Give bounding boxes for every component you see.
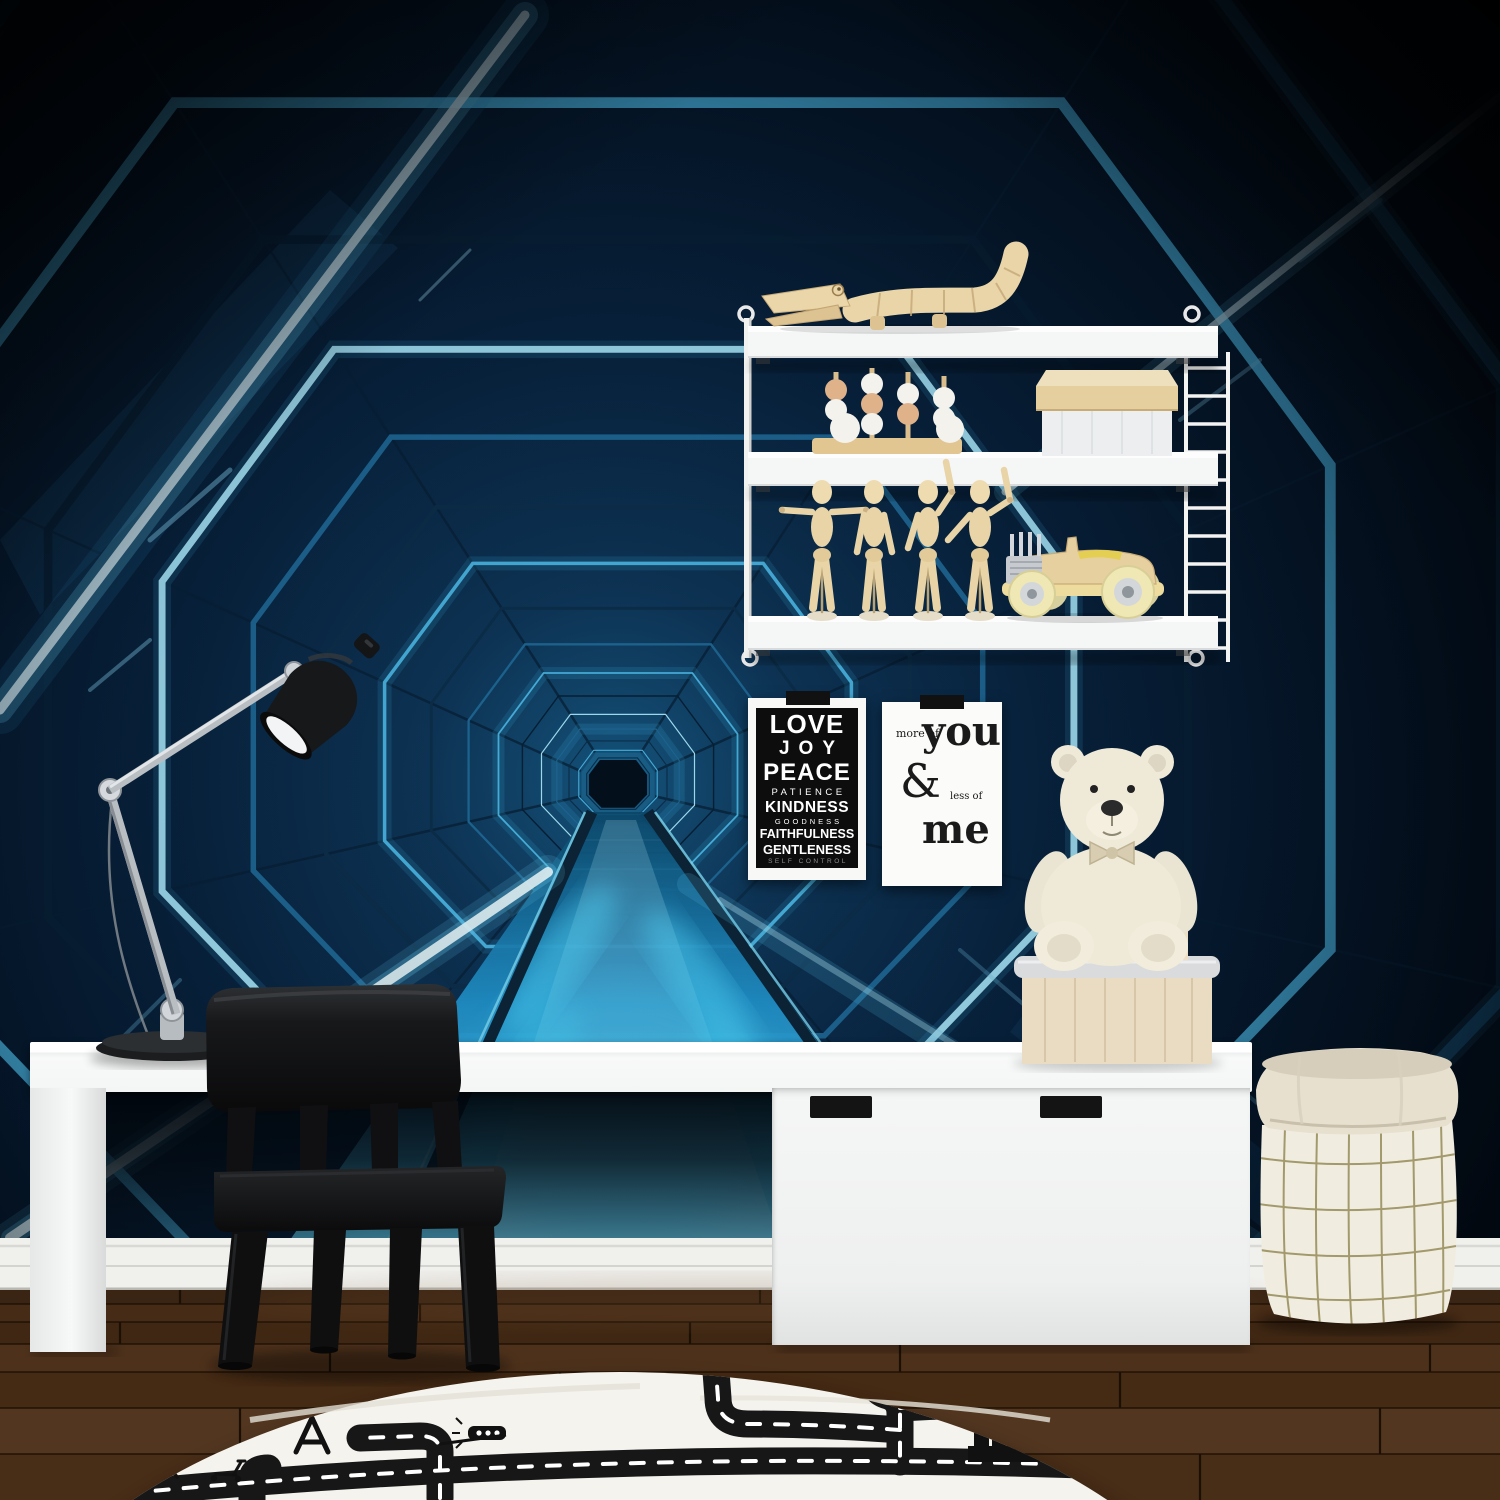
drawer-handle-left: [810, 1096, 872, 1118]
poster-black-panel: LOVE JOY PEACE PATIENCE KINDNESS GOODNES…: [756, 708, 858, 868]
poster-line-peace: PEACE: [763, 761, 851, 785]
teddy-and-boxes: [1000, 730, 1230, 1075]
laundry-basket: [1235, 1040, 1480, 1340]
poster-line-joy: JOY: [779, 739, 844, 758]
lamp-head: [250, 614, 401, 770]
storage-cabinet: [772, 1088, 1250, 1345]
room-scene: LOVE JOY PEACE PATIENCE KINDNESS GOODNES…: [0, 0, 1500, 1500]
shelf-post-left: [744, 318, 752, 658]
kids-chair: [180, 955, 520, 1385]
teddy-bear: [1016, 745, 1206, 971]
poster-tape-icon: [920, 695, 964, 709]
toy-abacus: [812, 368, 964, 454]
toy-car: [1002, 532, 1164, 623]
poster-more-of-you: more of you & less of me: [882, 702, 1002, 886]
toy-crocodile: [762, 254, 1020, 334]
poster-line-goodness: GOODNESS: [775, 818, 842, 826]
poster-tape-icon: [786, 691, 830, 705]
chair-back-slats: [226, 1101, 462, 1177]
chair-seat: [214, 1166, 506, 1232]
poster-line-self-control: SELF CONTROL: [768, 859, 848, 866]
poster-word-me: me: [922, 810, 990, 850]
wall-shelf: [720, 225, 1260, 690]
chair-backrest: [206, 984, 461, 1112]
shelf-board-bottom: [748, 616, 1218, 656]
poster-line-faithfulness: FAITHFULNESS: [760, 828, 854, 841]
toy-mannequin-2: [857, 480, 892, 621]
poster-line-patience: PATIENCE: [771, 788, 845, 798]
chair-legs: [218, 1226, 500, 1372]
desk-side-panel: [30, 1088, 106, 1352]
poster-word-ampersand: &: [900, 758, 941, 804]
drawer-handle-right: [1040, 1096, 1102, 1118]
poster-line-gentleness: GENTLENESS: [763, 843, 851, 856]
poster-word-you: you: [922, 712, 1001, 752]
lamp-arm-lower: [107, 792, 176, 1014]
basket-cuff: [1256, 1048, 1458, 1135]
poster-word-less-of: less of: [950, 792, 982, 802]
shelf-ladder-right: [1186, 352, 1228, 662]
toy-storage-box: [1036, 370, 1178, 456]
poster-line-love: LOVE: [770, 711, 845, 737]
poster-line-kindness: KINDNESS: [765, 800, 849, 816]
poster-fruit-of-the-spirit: LOVE JOY PEACE PATIENCE KINDNESS GOODNES…: [748, 698, 866, 880]
